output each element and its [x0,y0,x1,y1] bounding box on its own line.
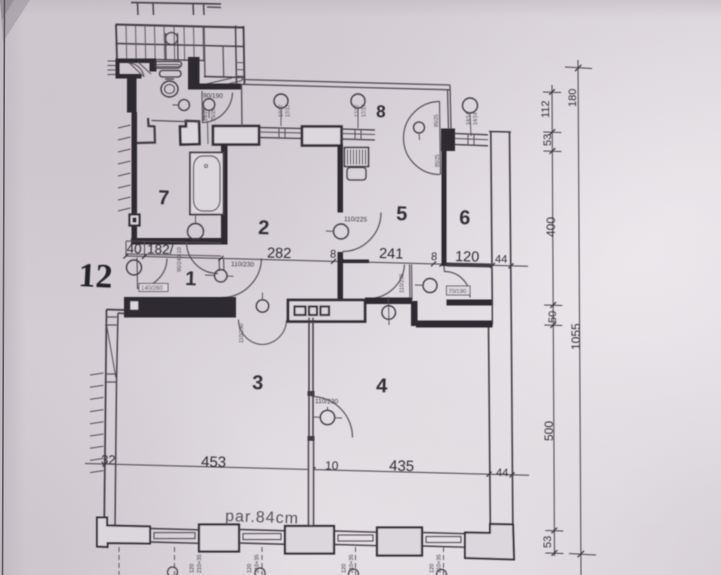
svg-text:53: 53 [542,536,554,548]
svg-text:44: 44 [495,254,508,266]
svg-text:2: 2 [258,217,270,239]
svg-text:10: 10 [325,459,339,473]
svg-text:210+35: 210+35 [197,554,203,573]
svg-text:25/25: 25/25 [211,108,217,121]
svg-text:53: 53 [542,134,554,146]
svg-text:5: 5 [396,203,408,225]
svg-text:85/25: 85/25 [434,114,440,127]
svg-text:6: 6 [459,207,471,229]
svg-text:90/240-10: 90/240-10 [177,247,183,272]
svg-text:400: 400 [544,217,558,237]
svg-text:17/17: 17/17 [362,104,368,117]
svg-text:110/225: 110/225 [344,216,368,224]
svg-text:120: 120 [190,564,196,573]
svg-text:110/230: 110/230 [231,261,255,269]
svg-text:3: 3 [252,372,264,394]
svg-text:par.84cm: par.84cm [225,508,299,528]
svg-text:120: 120 [247,564,253,573]
svg-text:120: 120 [430,564,436,573]
svg-text:453: 453 [201,454,226,472]
svg-text:44: 44 [496,467,509,479]
svg-text:17/17: 17/17 [279,104,285,117]
svg-text:120: 120 [342,564,348,573]
svg-text:4: 4 [376,375,389,397]
svg-text:110/230: 110/230 [315,398,339,406]
svg-text:8: 8 [376,102,386,121]
svg-text:17/17: 17/17 [355,104,361,117]
svg-text:435: 435 [389,458,414,476]
svg-text:12: 12 [78,257,114,296]
svg-text:1055: 1055 [569,323,583,350]
svg-text:1: 1 [185,268,197,290]
svg-text:70/190: 70/190 [449,289,467,295]
svg-text:282: 282 [267,246,292,263]
svg-text:110/235: 110/235 [400,274,406,293]
svg-text:7: 7 [158,187,170,209]
svg-text:17/17: 17/17 [286,104,292,117]
svg-text:241: 241 [379,246,404,263]
svg-text:182/: 182/ [147,242,174,258]
svg-text:85/25: 85/25 [435,154,441,167]
svg-text:140/260: 140/260 [141,286,163,292]
svg-text:50: 50 [547,311,559,323]
svg-text:8: 8 [330,249,336,261]
svg-text:112: 112 [540,100,552,118]
svg-text:8: 8 [431,251,437,263]
svg-text:14/14: 14/14 [466,112,472,125]
svg-text:14/14: 14/14 [473,112,479,125]
svg-text:180: 180 [567,89,579,107]
svg-text:500: 500 [542,421,556,441]
